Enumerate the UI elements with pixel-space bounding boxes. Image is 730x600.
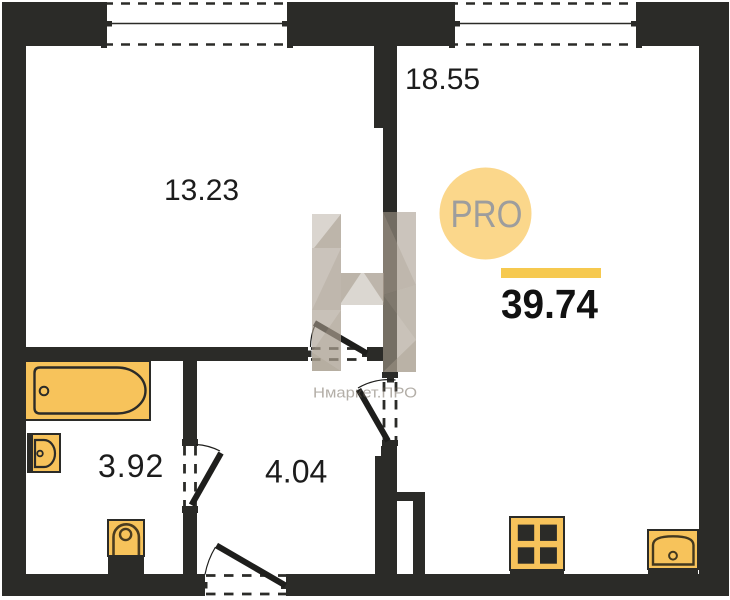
svg-text:18.55: 18.55 bbox=[405, 63, 480, 96]
svg-text:4.04: 4.04 bbox=[265, 454, 327, 490]
svg-text:PRO: PRO bbox=[451, 194, 523, 236]
svg-text:3.92: 3.92 bbox=[98, 448, 164, 484]
svg-text:Нмаркет.ПРО: Нмаркет.ПРО bbox=[313, 386, 417, 402]
svg-text:13.23: 13.23 bbox=[164, 174, 239, 207]
svg-text:39.74: 39.74 bbox=[501, 281, 598, 327]
